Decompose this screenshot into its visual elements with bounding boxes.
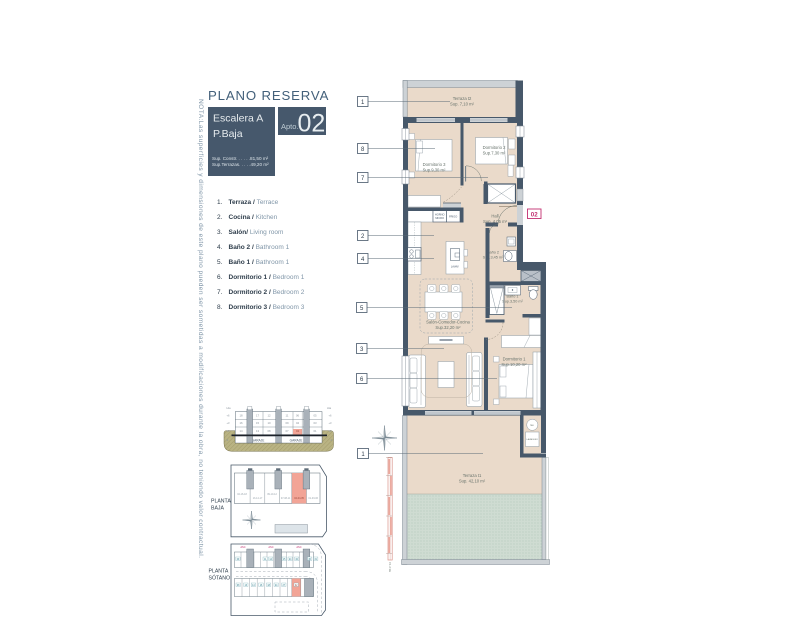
svg-text:Sup. Constr. . . . . .81,50 m²: Sup. Constr. . . . . .81,50 m²	[212, 156, 269, 161]
svg-text:Terraza t1: Terraza t1	[463, 473, 482, 478]
svg-text:6.: 6.	[217, 274, 223, 281]
svg-text:Baño 1: Baño 1	[506, 295, 518, 299]
svg-text:2.: 2.	[217, 214, 223, 221]
svg-text:PLANTA: PLANTA	[211, 499, 231, 505]
svg-text:02: 02	[298, 110, 326, 138]
svg-text:BAJA: BAJA	[211, 506, 225, 512]
svg-text:HORNO: HORNO	[435, 213, 445, 217]
svg-text:Sup.Terrazas. . . . .49,20 m²: Sup.Terrazas. . . . .49,20 m²	[212, 162, 269, 167]
svg-text:Sup.3,50 m²: Sup.3,50 m²	[502, 300, 523, 304]
svg-text:12: 12	[267, 414, 271, 418]
svg-text:ASC: ASC	[240, 545, 245, 549]
svg-text:07-08-11: 07-08-11	[281, 497, 291, 500]
svg-text:09-10-12: 09-10-12	[267, 493, 277, 496]
svg-text:Sup.10,20 m²: Sup.10,20 m²	[501, 362, 527, 367]
svg-text:GARAJE: GARAJE	[252, 438, 265, 442]
svg-text:Hall: Hall	[491, 214, 498, 219]
svg-text:7.: 7.	[217, 289, 223, 296]
svg-text:Salón-Comedor-Cocina: Salón-Comedor-Cocina	[426, 320, 470, 325]
svg-text:LAVAV.: LAVAV.	[451, 265, 460, 269]
svg-text:ASC: ASC	[296, 545, 301, 549]
svg-text:Dormitorio 2 / Bedroom 2: Dormitorio 2 / Bedroom 2	[229, 289, 305, 296]
svg-text:GARAJE: GARAJE	[290, 438, 303, 442]
svg-text:Hta: Hta	[226, 406, 231, 410]
svg-text:Sup. 7,10 m²: Sup. 7,10 m²	[450, 102, 475, 107]
svg-text:06: 06	[296, 414, 300, 418]
svg-text:17: 17	[256, 414, 260, 418]
svg-text:8.: 8.	[217, 304, 223, 311]
svg-text:11: 11	[286, 414, 289, 418]
svg-text:LAVADERO: LAVADERO	[526, 438, 538, 441]
svg-text:Sup. 42,10 m²: Sup. 42,10 m²	[459, 479, 486, 484]
svg-text:02: 02	[531, 211, 538, 218]
svg-text:4.: 4.	[217, 244, 223, 251]
svg-text:09: 09	[285, 421, 289, 425]
svg-text:05: 05	[313, 414, 317, 418]
svg-text:01-03-06: 01-03-06	[308, 497, 318, 500]
svg-text:ASC: ASC	[268, 545, 273, 549]
svg-text:07: 07	[285, 429, 289, 433]
svg-text:0 1 2 3m: 0 1 2 3m	[388, 562, 392, 572]
svg-text:13: 13	[256, 429, 260, 433]
svg-text:14: 14	[239, 429, 243, 433]
svg-text:15: 15	[256, 421, 260, 425]
svg-text:08: 08	[267, 429, 271, 433]
svg-text:PLANTA: PLANTA	[209, 569, 229, 575]
svg-text:Apto.: Apto.	[281, 122, 299, 131]
svg-text:Terraza / Terrace: Terraza / Terrace	[229, 199, 279, 206]
svg-text:Dormitorio 3 / Bedroom 3: Dormitorio 3 / Bedroom 3	[229, 304, 305, 311]
svg-text:P.Baja: P.Baja	[213, 128, 243, 140]
svg-text:MICRO: MICRO	[435, 216, 444, 220]
svg-text:03: 03	[313, 421, 317, 425]
svg-text:04: 04	[296, 421, 300, 425]
svg-text:Cocina / Kitchen: Cocina / Kitchen	[229, 214, 278, 221]
svg-text:04-16-18: 04-16-18	[237, 493, 247, 496]
svg-text:01: 01	[313, 429, 317, 433]
svg-text:10: 10	[267, 421, 271, 425]
svg-text:SÓTANO: SÓTANO	[209, 575, 231, 582]
svg-text:NOTA:Las superficies y dimensi: NOTA:Las superficies y dimensiones de es…	[197, 99, 204, 558]
svg-text:02: 02	[296, 429, 300, 433]
svg-text:PLANO RESERVA: PLANO RESERVA	[208, 88, 329, 103]
svg-text:Salón/ Living room: Salón/ Living room	[229, 229, 284, 236]
svg-text:Dormitorio 2: Dormitorio 2	[483, 145, 506, 150]
svg-text:FRIGO: FRIGO	[449, 215, 457, 219]
svg-text:18: 18	[239, 414, 243, 418]
svg-text:3.: 3.	[217, 229, 223, 236]
svg-text:Escalera A: Escalera A	[213, 113, 263, 125]
svg-text:16: 16	[239, 421, 243, 425]
svg-text:Dormitorio 1: Dormitorio 1	[503, 357, 526, 362]
svg-text:02-04-05: 02-04-05	[294, 497, 304, 500]
svg-text:13-14-17: 13-14-17	[253, 497, 263, 500]
svg-text:Sup.32,20 m²: Sup.32,20 m²	[435, 325, 461, 330]
svg-text:Sup.9,30 m²: Sup.9,30 m²	[423, 168, 446, 173]
svg-text:Baño 1 / Bathroom 1: Baño 1 / Bathroom 1	[229, 259, 290, 266]
svg-text:1.: 1.	[217, 199, 223, 206]
svg-text:Baño 2 / Bathroom 1: Baño 2 / Bathroom 1	[229, 244, 290, 251]
svg-text:Dormitorio 1 / Bedroom 1: Dormitorio 1 / Bedroom 1	[229, 274, 305, 281]
svg-text:Dormitorio 3: Dormitorio 3	[423, 162, 446, 167]
svg-text:Sup.7,30 m²: Sup.7,30 m²	[483, 151, 506, 156]
svg-text:5.: 5.	[217, 259, 223, 266]
svg-text:Hta: Hta	[327, 406, 332, 410]
svg-text:Terraza t2: Terraza t2	[453, 96, 472, 101]
svg-text:lav.: lav.	[531, 424, 535, 427]
